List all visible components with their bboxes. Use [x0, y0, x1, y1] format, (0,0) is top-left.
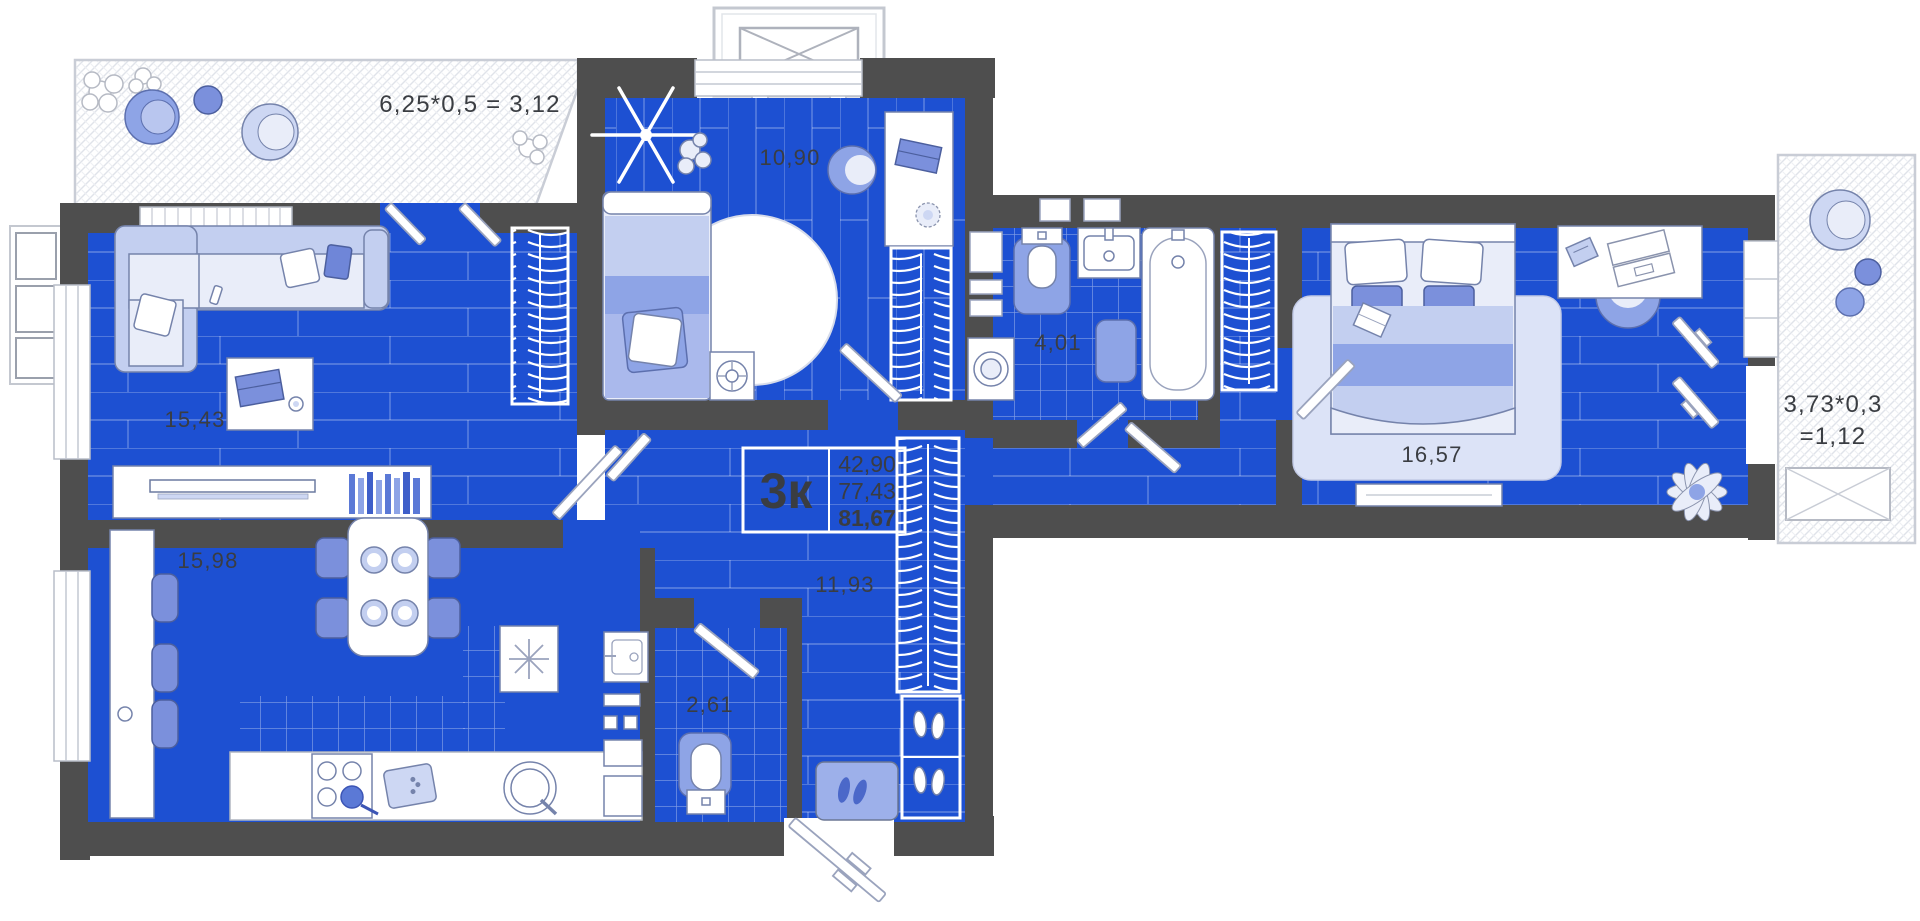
round-sink-icon — [504, 762, 556, 814]
rooms-count-label: 3к — [760, 463, 814, 519]
bed-master-icon — [1331, 224, 1515, 434]
window-master-right — [1744, 241, 1778, 357]
shelf-icon — [970, 232, 1002, 272]
balcony-right-pot-icon — [1855, 259, 1881, 285]
living-room-area-label: 15,43 — [164, 407, 225, 432]
washing-machine-icon — [968, 338, 1014, 400]
master-balcony-opening — [1746, 366, 1777, 464]
fridge-icon — [500, 626, 558, 692]
kitchen-area-label: 15,98 — [177, 548, 238, 573]
balcony-right-formula-1: 3,73*0,3 — [1783, 391, 1882, 418]
sink-bathroom-icon — [1078, 228, 1140, 278]
window-kitchen-left — [54, 571, 90, 761]
doormat-icon — [816, 762, 898, 820]
bed-small-icon — [603, 192, 711, 400]
vent-box2-icon — [1084, 199, 1120, 221]
balcony-right-plant-icon — [1836, 288, 1864, 316]
balcony-right: 3,73*0,3 =1,12 — [1778, 155, 1915, 543]
vent-box-icon — [1040, 199, 1070, 221]
area-living-label: 42,90 — [838, 451, 896, 477]
pan-icon — [341, 786, 363, 808]
area-total-label: 81,67 — [838, 505, 896, 531]
shelf3-icon — [970, 300, 1002, 316]
bath-rug-icon — [1096, 320, 1136, 382]
tv-stand-master-icon — [1356, 484, 1502, 506]
window-living-left — [54, 285, 90, 459]
dining-chair-icon — [316, 598, 350, 638]
bedroom-master-area-label: 16,57 — [1401, 442, 1462, 467]
dining-chair-icon — [316, 538, 350, 578]
floorplan-page: 6,25*0,5 = 3,12 3,73*0,3 =1,12 — [0, 0, 1920, 921]
wardrobe-bedroom-icon — [891, 248, 951, 400]
hallway-area-label: 11,93 — [815, 572, 874, 597]
wc: 2,61 — [679, 692, 734, 814]
bedroom-small-area-label: 10,90 — [759, 145, 820, 170]
window-bedroom-top — [695, 60, 862, 96]
wardrobe-living-icon — [512, 228, 568, 404]
kitchen-counter-icon — [230, 752, 642, 820]
dining-chair-icon — [426, 538, 460, 578]
balcony-left-formula: 6,25*0,5 = 3,12 — [379, 91, 560, 118]
dining-chair-icon — [426, 598, 460, 638]
balcony-bench-icon — [1786, 468, 1890, 520]
bar-counter-icon — [110, 530, 154, 818]
balcony-table-icon — [194, 86, 222, 114]
wardrobe-nook-icon — [1222, 232, 1276, 390]
bathtub-icon — [1142, 228, 1214, 400]
stove-icon — [312, 754, 378, 818]
area-usable-label: 77,43 — [838, 478, 896, 504]
bathroom-area-label: 4,01 — [1034, 330, 1082, 355]
floorplan-svg: 6,25*0,5 = 3,12 3,73*0,3 =1,12 — [0, 0, 1920, 921]
tv-console-icon — [113, 466, 431, 518]
sink-box-icon — [604, 632, 648, 682]
balcony-chair2-icon — [242, 104, 298, 160]
nightstand-fan-icon — [710, 352, 754, 400]
balcony-left: 6,25*0,5 = 3,12 — [75, 60, 578, 205]
bar-stools-icon — [152, 574, 178, 748]
cutting-board-icon — [383, 763, 437, 809]
wc-area-label: 2,61 — [686, 692, 734, 717]
coffee-table-icon — [227, 358, 313, 430]
toilet-wc-icon — [679, 733, 731, 814]
balcony-right-chair-icon — [1810, 190, 1870, 250]
shelf2-icon — [970, 280, 1002, 294]
toilet-bathroom-icon — [1014, 228, 1070, 314]
balcony-right-formula-2: =1,12 — [1800, 423, 1867, 450]
balcony-chair-icon — [125, 90, 179, 144]
